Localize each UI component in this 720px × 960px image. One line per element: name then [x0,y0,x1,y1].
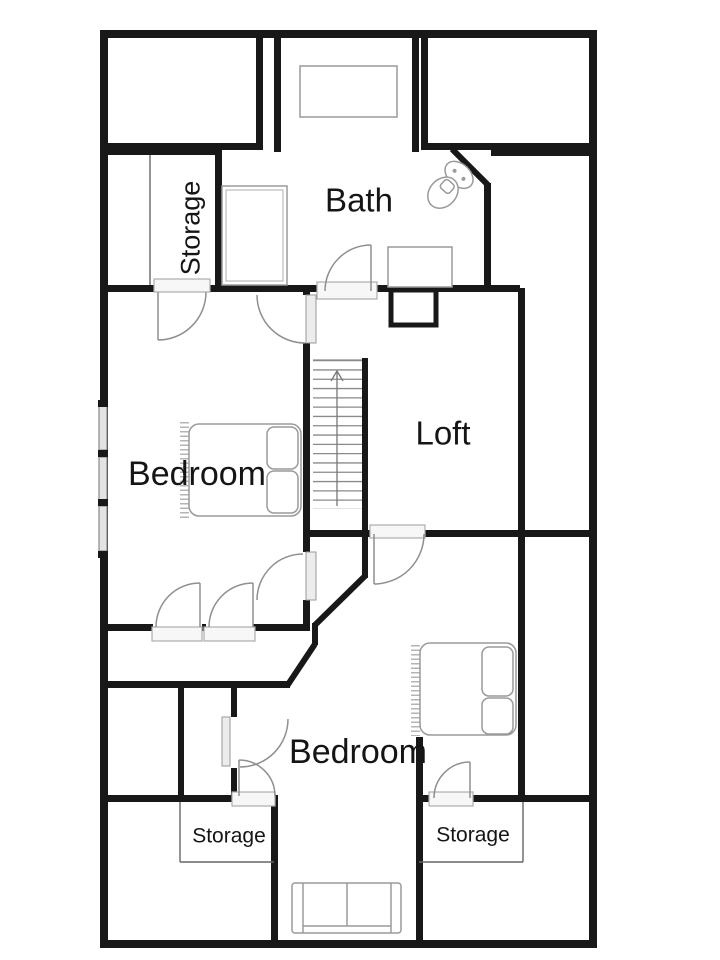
shower-inner [226,190,283,281]
door-closet-right [209,583,253,627]
wall-segment [309,530,370,537]
wall-segment [362,537,368,578]
wall-segment [253,624,307,631]
wall-segment [271,795,278,944]
room-label-storage-bottom-left: Storage [192,826,266,847]
wall-segment [231,688,237,717]
wall-segment [106,681,290,688]
wall-segment [100,30,597,38]
floorplan-canvas [0,0,720,960]
door-sill [429,792,473,806]
wall-segment [100,940,597,948]
wall-segment [178,688,184,798]
wall-segment [525,530,591,537]
door-sill [370,525,425,538]
room-label-bedroom-bottom: Bedroom [289,735,427,769]
door-closet-left [156,583,200,627]
bathtub [300,66,397,117]
windows [98,400,108,558]
wall-segment [287,644,315,686]
wall-segment [106,795,237,802]
wall-segment [312,623,318,645]
wall-segment [491,150,591,156]
wall-segment [106,624,153,631]
bed-bottom-bedroom [416,643,517,736]
room-label-storage-bottom-right: Storage [436,825,510,846]
wall-segment [256,30,263,150]
window [99,457,107,500]
wall-segment [106,148,222,155]
chimney [391,290,436,325]
window-mullion [98,551,108,558]
door-leaf [306,552,316,600]
wall-segment [424,530,518,537]
couch [292,883,401,933]
wall-segment [315,576,365,625]
bath-vanity [388,247,452,287]
window [99,506,107,551]
room-label-bath: Bath [325,184,393,217]
wall-segment [421,143,591,150]
wall-segment [470,795,591,802]
door-loft-bedroom [374,534,424,584]
door-bedroom-closet [257,554,303,600]
door-storage-bottom-left [239,760,275,796]
window-mullion [98,450,108,457]
window-mullion [98,499,108,506]
door-sill [152,627,202,641]
door-small-closet [240,719,288,767]
wall-segment [518,288,525,798]
room-label-bedroom-left: Bedroom [128,457,266,491]
door-sill [204,627,255,641]
wall-segment [274,30,281,152]
window-mullion [98,400,108,407]
bed-pillow [482,647,513,696]
bed-pillow [267,427,298,469]
staircase [313,360,362,509]
wall-segment [484,183,491,287]
door-leaf [306,295,316,343]
door-leaf [222,717,230,766]
wall-segment [362,358,368,537]
floor-plan: Bath Storage Bedroom Loft Bedroom Storag… [0,0,720,960]
window [99,406,107,450]
wall-segment [412,30,419,152]
door-sill [154,279,210,292]
door-bedroom-landing [257,295,305,343]
wall-segment [421,30,428,150]
wall-segment [106,285,155,292]
wall-segment [589,30,597,948]
wall-segment [303,285,310,295]
bed-pillow [267,471,298,513]
wall-segment [215,148,222,292]
door-storage-top [158,292,206,340]
bed-pillow [482,698,513,734]
room-label-loft: Loft [415,417,470,450]
wall-segment [303,343,310,552]
room-label-storage-top: Storage [178,181,205,276]
